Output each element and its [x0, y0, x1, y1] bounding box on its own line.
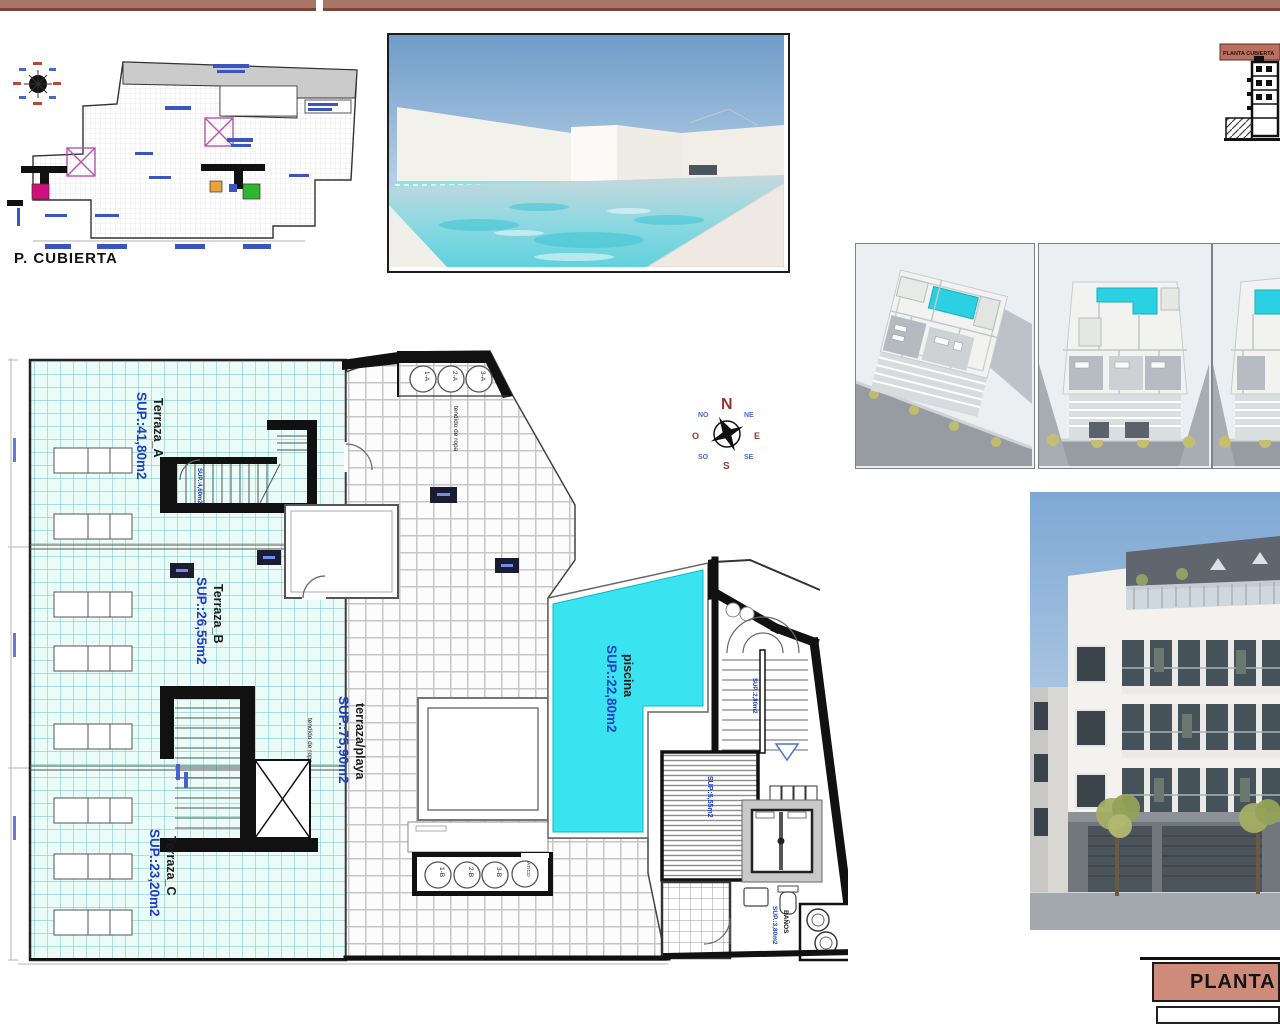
render-block-side: [617, 125, 681, 185]
stair-a-area: SUP.:4,60m2: [196, 468, 202, 504]
terrace-b-area: SUP.:26,55m2: [194, 577, 209, 665]
bathroom-name: BAÑOS: [782, 910, 791, 934]
floor-plan: 1-A 2-A 3-A tendido de ropa SUP.:4,60m2: [8, 348, 848, 966]
skylight-label: 3-B: [495, 867, 502, 877]
skylight-bar-bottom: 1-B 2-B 3-B ÁTICO: [412, 852, 553, 896]
aerial-render-1: [855, 243, 1035, 469]
dimension-texts: [13, 438, 16, 840]
skylight-label: 3-A: [479, 371, 486, 382]
facade-street: [1030, 892, 1280, 930]
title-block-strip: [1156, 1006, 1280, 1024]
terrace-a-area: SUP.:41,80m2: [134, 392, 149, 480]
skylight-label: 2-B: [467, 867, 474, 877]
facade-render: [1030, 492, 1280, 930]
mini-unit-chip-orange: [210, 181, 222, 192]
closets: [770, 786, 817, 801]
skylight-label: 1-B: [438, 867, 445, 877]
skylight-label: 1-A: [423, 371, 430, 382]
title-divider: [1140, 957, 1280, 960]
storage-area-label: SUP.:5,55m2: [706, 776, 713, 818]
section-building: [1252, 62, 1278, 136]
laundry-label-top: tendido de ropa: [452, 406, 459, 452]
top-accent-bar-right: [323, 0, 1280, 11]
pool-render: [387, 33, 790, 273]
section-thumbnail: PLANTA CUBIERTA: [1218, 38, 1280, 150]
skylight-label: ÁTICO: [525, 862, 532, 877]
mini-unit-chip-pink: [32, 184, 49, 199]
laundry-label-mid: tendido de ropa: [306, 718, 313, 764]
top-accent-bar-left: [0, 0, 316, 11]
render-block-front: [571, 125, 617, 187]
mini-dimension-texts: [45, 244, 271, 249]
beach-terrace-name: terraza/playa: [353, 703, 367, 780]
aerial-render-2: [1038, 243, 1212, 469]
aerial3-pool: [1255, 290, 1280, 314]
pool-area-label: SUP.:22,80m2: [604, 645, 619, 733]
aerial-render-3: [1212, 243, 1280, 469]
mini-unit-chip-blue: [229, 184, 237, 192]
beach-terrace-area: SUP.:75,90m2: [336, 696, 351, 784]
title-block: PLANTA C: [1152, 962, 1280, 1002]
mini-roof-plan: P. CUBIERTA: [5, 48, 375, 270]
section-ground-hatch: [1226, 118, 1252, 140]
terrace-b-name: Terraza_B: [211, 584, 225, 644]
terrace-c-name: Terraza_C: [164, 836, 178, 896]
plan-sheet: P. CUBIERTA: [0, 0, 1280, 1024]
mini-compass-icon: [13, 62, 61, 105]
sheet-title: PLANTA C: [1190, 971, 1280, 994]
central-room: [408, 698, 548, 852]
pool-name: piscina: [621, 654, 635, 698]
facade-windows: [1076, 640, 1280, 820]
skylight-label: 2-A: [451, 371, 458, 382]
bathroom-area: SUP.:3,80m2: [771, 906, 778, 945]
bathroom: BAÑOS SUP.:3,80m2: [662, 882, 848, 960]
section-label: PLANTA CUBIERTA: [1223, 51, 1274, 57]
core-area: SUP.:2,80m2: [751, 678, 757, 714]
terrace-a-name: Terraza_A: [151, 398, 165, 458]
mini-plan-caption: P. CUBIERTA: [14, 250, 118, 267]
mini-unit-chip-green: [243, 184, 260, 199]
terrace-c-area: SUP.:23,20m2: [147, 829, 162, 917]
elevator: [742, 800, 822, 882]
